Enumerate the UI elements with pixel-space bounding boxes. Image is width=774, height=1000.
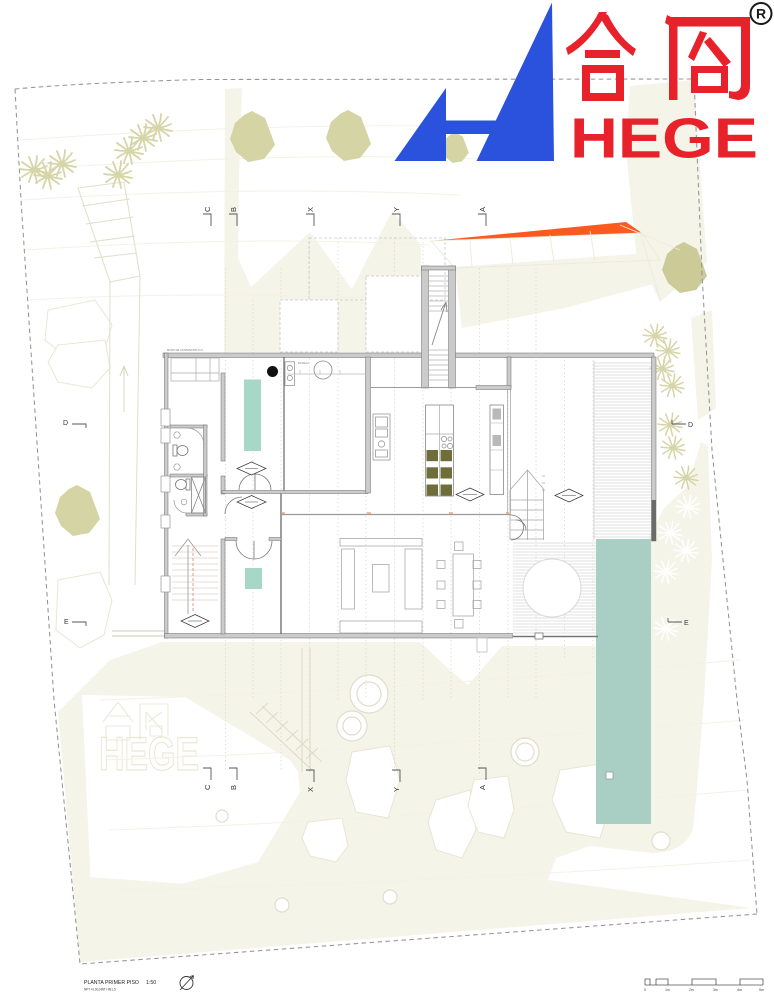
svg-text:E: E (684, 620, 689, 627)
svg-text:R: R (756, 6, 766, 22)
svg-text:0: 0 (644, 988, 646, 992)
svg-text:X: X (306, 207, 315, 212)
svg-text:NPT+0,00,NNT+991,5: NPT+0,00,NNT+991,5 (84, 988, 116, 992)
svg-text:BODEGA: BODEGA (298, 361, 309, 365)
svg-text:3m: 3m (713, 988, 718, 992)
svg-text:C: C (203, 784, 212, 790)
svg-text:5m: 5m (759, 988, 764, 992)
svg-text:MURO DE CONTENCION S.N.: MURO DE CONTENCION S.N. (167, 348, 203, 352)
svg-text:A: A (478, 207, 487, 212)
svg-text:1:50: 1:50 (146, 980, 156, 986)
svg-text:HEGE: HEGE (99, 727, 199, 780)
svg-text:A: A (478, 785, 487, 790)
svg-text:PLANTA PRIMER PISO: PLANTA PRIMER PISO (84, 980, 139, 986)
svg-text:X: X (306, 787, 315, 792)
svg-text:C: C (203, 206, 212, 212)
svg-text:Y: Y (392, 787, 401, 792)
svg-text:Y: Y (392, 207, 401, 212)
svg-text:B: B (229, 785, 238, 790)
svg-text:D: D (63, 420, 68, 427)
svg-text:HEGE: HEGE (570, 107, 758, 171)
svg-text:4m: 4m (737, 988, 742, 992)
svg-text:2m: 2m (689, 988, 694, 992)
svg-text:D: D (688, 422, 693, 429)
svg-text:E: E (64, 619, 69, 626)
svg-text:B: B (229, 207, 238, 212)
svg-text:1m: 1m (665, 988, 670, 992)
